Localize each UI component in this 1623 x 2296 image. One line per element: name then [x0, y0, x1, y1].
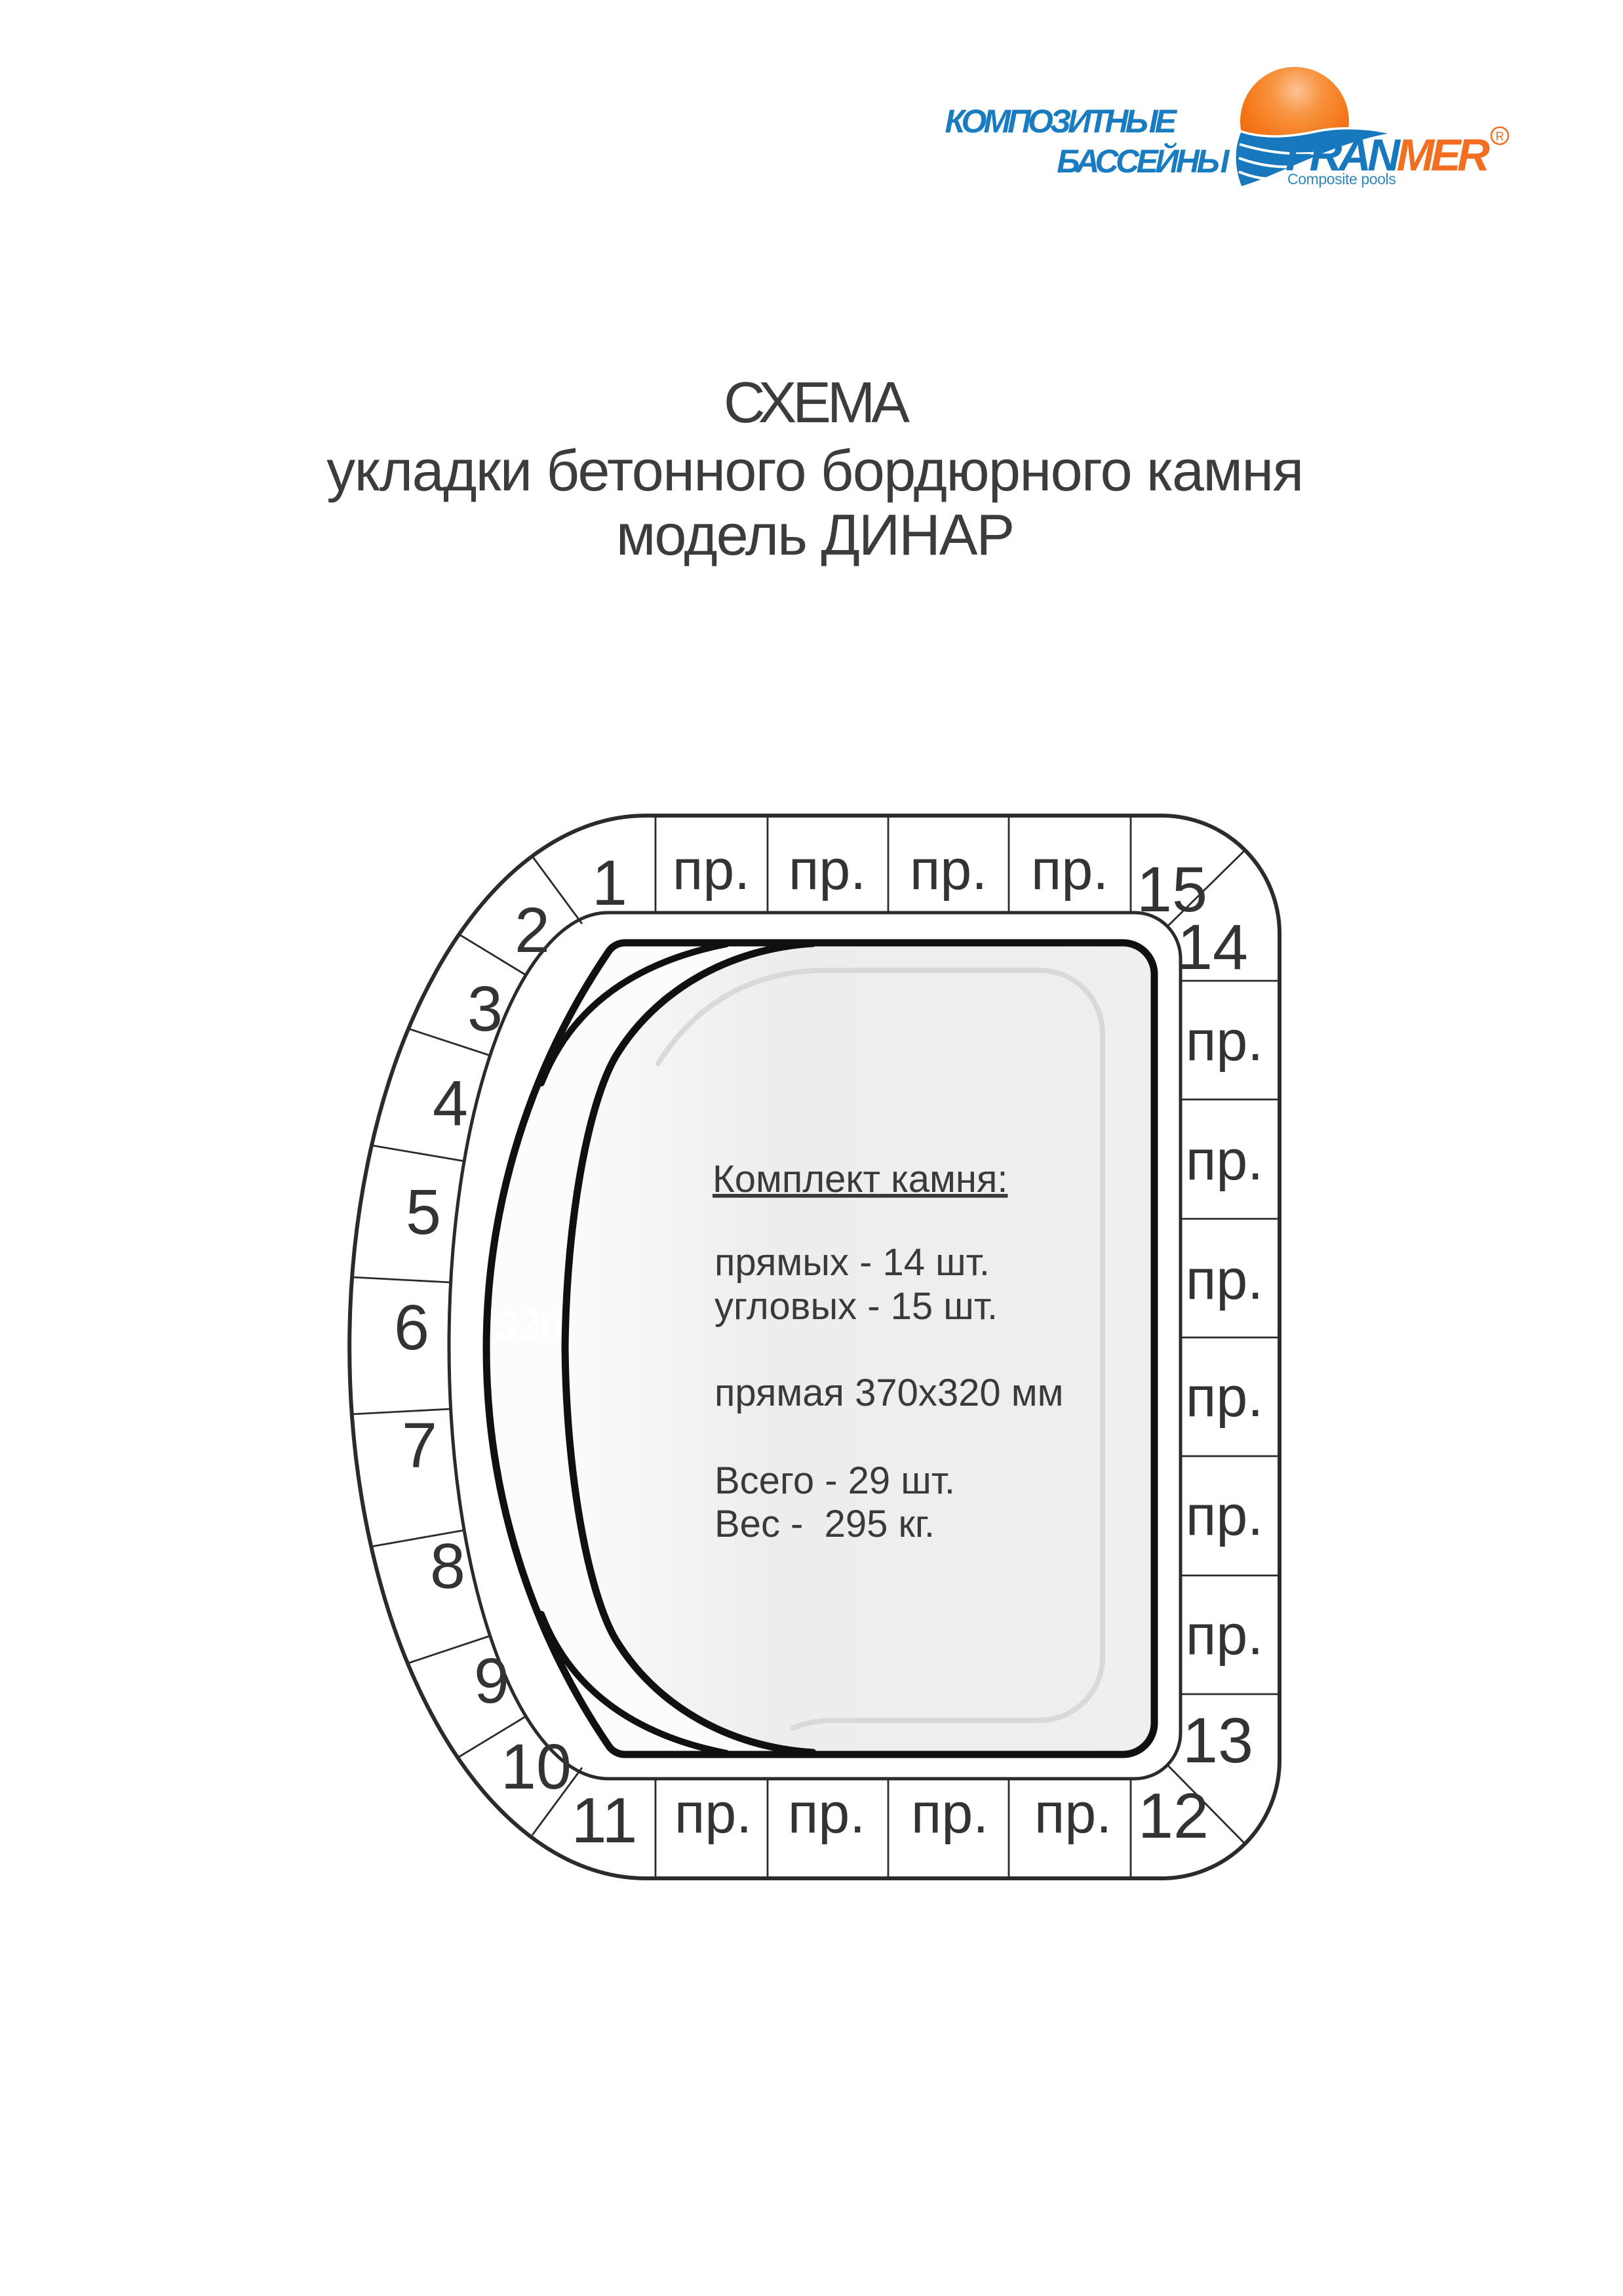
svg-text:2: 2	[515, 894, 550, 966]
svg-text:пр.: пр.	[1186, 1010, 1263, 1073]
svg-text:пр.: пр.	[1186, 1129, 1263, 1192]
svg-text:320: 320	[496, 1303, 563, 1348]
svg-text:Вес - 295 кг.: Вес - 295 кг.	[714, 1503, 935, 1545]
svg-text:КОМПОЗИТНЫЕ: КОМПОЗИТНЫЕ	[945, 103, 1177, 140]
svg-text:модель ДИНАР: модель ДИНАР	[616, 502, 1013, 567]
svg-text:пр.: пр.	[910, 839, 987, 901]
svg-text:СХЕМА: СХЕМА	[724, 370, 910, 435]
svg-text:угловых - 15 шт.: угловых - 15 шт.	[714, 1285, 998, 1328]
svg-text:прямых - 14 шт.: прямых - 14 шт.	[714, 1241, 990, 1284]
svg-text:12: 12	[1138, 1780, 1209, 1851]
svg-text:R: R	[1496, 130, 1504, 143]
svg-text:5: 5	[406, 1176, 441, 1248]
svg-text:Composite pools: Composite pools	[1287, 170, 1396, 188]
svg-text:9: 9	[474, 1645, 509, 1716]
svg-text:13: 13	[1183, 1705, 1253, 1776]
svg-text:укладки бетонного бордюрного к: укладки бетонного бордюрного камня	[326, 438, 1302, 503]
svg-text:пр.: пр.	[788, 1782, 865, 1845]
svg-text:8: 8	[430, 1530, 465, 1602]
svg-text:пр.: пр.	[1034, 1782, 1112, 1845]
svg-text:7: 7	[402, 1410, 437, 1481]
svg-text:пр.: пр.	[1186, 1248, 1263, 1311]
svg-text:Комплект камня:: Комплект камня:	[713, 1158, 1007, 1200]
svg-text:пр.: пр.	[1186, 1604, 1263, 1667]
svg-text:15: 15	[1137, 854, 1207, 925]
svg-text:пр.: пр.	[673, 839, 750, 901]
svg-text:пр.: пр.	[911, 1782, 988, 1845]
svg-text:6: 6	[394, 1292, 429, 1363]
svg-text:БАССЕЙНЫ: БАССЕЙНЫ	[1057, 142, 1230, 180]
svg-text:пр.: пр.	[789, 839, 866, 901]
svg-text:1: 1	[592, 847, 627, 919]
svg-text:прямая 370х320 мм: прямая 370х320 мм	[714, 1372, 1063, 1414]
svg-text:Всего - 29 шт.: Всего - 29 шт.	[714, 1459, 955, 1502]
svg-text:пр.: пр.	[1186, 1484, 1263, 1547]
svg-text:3: 3	[467, 973, 503, 1044]
svg-text:пр.: пр.	[675, 1782, 752, 1845]
svg-text:4: 4	[433, 1067, 468, 1139]
svg-text:10: 10	[501, 1731, 572, 1802]
svg-text:11: 11	[572, 1785, 638, 1856]
svg-text:пр.: пр.	[1031, 839, 1108, 901]
svg-text:пр.: пр.	[1186, 1366, 1263, 1429]
